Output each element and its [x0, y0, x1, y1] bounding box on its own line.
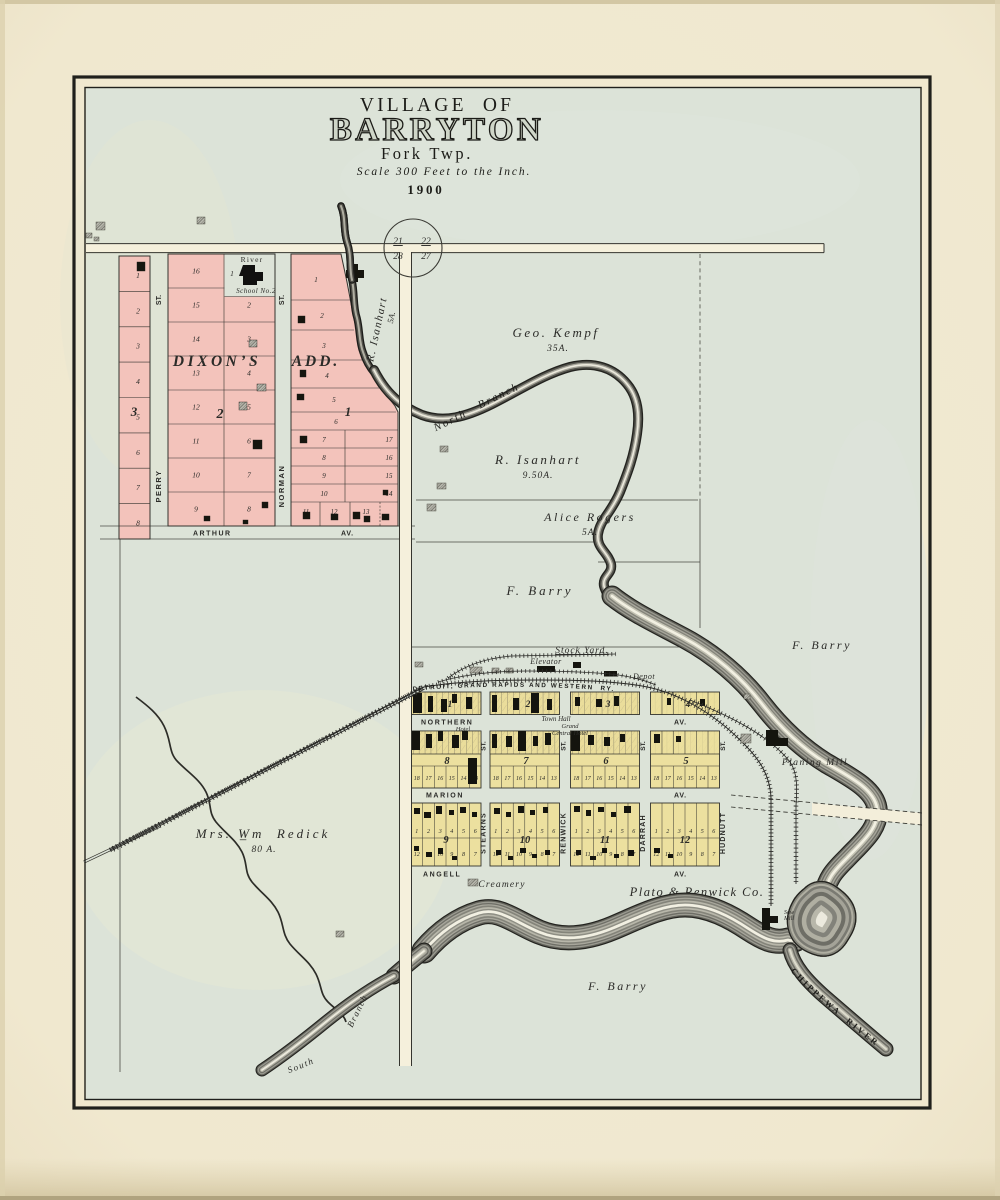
- svg-text:Hotel: Hotel: [455, 726, 471, 733]
- svg-text:RENWICK: RENWICK: [560, 812, 567, 854]
- svg-text:7: 7: [136, 483, 140, 492]
- svg-text:13: 13: [711, 776, 717, 782]
- svg-text:5: 5: [621, 829, 624, 835]
- svg-text:6: 6: [552, 829, 555, 835]
- svg-text:Central Hotel: Central Hotel: [552, 730, 588, 737]
- svg-text:8: 8: [701, 852, 704, 858]
- svg-text:Mill: Mill: [783, 916, 794, 922]
- svg-text:5: 5: [247, 403, 251, 412]
- svg-text:14: 14: [461, 775, 467, 782]
- svg-text:MARION: MARION: [426, 793, 464, 800]
- svg-text:9: 9: [689, 852, 692, 858]
- svg-text:10: 10: [596, 852, 602, 858]
- svg-text:10: 10: [676, 852, 682, 858]
- svg-text:1: 1: [314, 276, 318, 284]
- svg-text:14: 14: [192, 335, 200, 344]
- svg-text:13: 13: [192, 369, 200, 378]
- svg-text:18: 18: [493, 776, 499, 782]
- svg-text:ST.: ST.: [156, 295, 163, 305]
- svg-text:2: 2: [216, 407, 224, 422]
- svg-text:15: 15: [386, 472, 394, 480]
- svg-text:River: River: [241, 255, 264, 264]
- svg-text:NORMAN: NORMAN: [277, 465, 286, 508]
- svg-text:2: 2: [506, 829, 509, 835]
- svg-text:ST.: ST.: [279, 295, 286, 305]
- svg-text:2: 2: [320, 312, 324, 320]
- svg-text:ARTHUR: ARTHUR: [193, 531, 232, 538]
- svg-text:ST.: ST.: [481, 741, 488, 751]
- svg-text:F. Barry: F. Barry: [587, 979, 648, 993]
- svg-text:1: 1: [448, 700, 453, 710]
- svg-text:1900: 1900: [407, 182, 444, 197]
- svg-text:10: 10: [321, 490, 329, 498]
- svg-text:17: 17: [386, 436, 394, 444]
- svg-text:4: 4: [325, 372, 329, 380]
- svg-text:14: 14: [619, 775, 625, 782]
- svg-text:4: 4: [609, 828, 612, 835]
- svg-text:STEARNS: STEARNS: [481, 812, 488, 854]
- svg-text:12: 12: [414, 852, 420, 858]
- svg-text:1: 1: [415, 829, 418, 835]
- svg-text:9: 9: [529, 852, 532, 858]
- svg-text:HUDNUTT: HUDNUTT: [720, 812, 727, 854]
- svg-text:17: 17: [585, 776, 592, 782]
- svg-text:6: 6: [136, 448, 140, 457]
- svg-text:14: 14: [539, 775, 545, 782]
- svg-text:16: 16: [596, 776, 602, 782]
- svg-text:9: 9: [609, 852, 612, 858]
- svg-text:2: 2: [247, 301, 251, 310]
- svg-text:9: 9: [443, 835, 449, 846]
- svg-text:14: 14: [699, 775, 705, 782]
- svg-text:Geo. Kempf: Geo. Kempf: [512, 325, 599, 340]
- svg-text:13: 13: [631, 776, 637, 782]
- svg-text:3: 3: [438, 829, 442, 835]
- svg-text:F. Barry: F. Barry: [505, 583, 573, 598]
- svg-text:1: 1: [575, 829, 578, 835]
- svg-text:35A.: 35A.: [546, 344, 569, 354]
- svg-text:Planing Mill: Planing Mill: [781, 758, 848, 768]
- svg-text:1: 1: [655, 829, 658, 835]
- svg-text:2: 2: [136, 306, 140, 315]
- svg-text:8: 8: [247, 505, 251, 514]
- svg-text:8: 8: [541, 852, 544, 858]
- svg-text:7: 7: [523, 756, 529, 767]
- svg-text:7: 7: [247, 471, 251, 480]
- svg-text:6: 6: [334, 418, 338, 426]
- svg-text:18: 18: [653, 776, 659, 782]
- svg-text:8: 8: [462, 852, 465, 858]
- svg-text:5: 5: [462, 829, 465, 835]
- svg-text:18: 18: [414, 776, 420, 782]
- svg-text:13: 13: [363, 508, 371, 516]
- svg-text:DIXON’S: DIXON’S: [172, 353, 261, 370]
- svg-text:ADD.: ADD.: [291, 353, 341, 370]
- svg-text:3: 3: [321, 342, 326, 350]
- svg-text:17: 17: [665, 776, 672, 782]
- svg-text:AV.: AV.: [341, 531, 354, 538]
- svg-text:Mrs. W̲m Redick: Mrs. W̲m Redick: [195, 826, 331, 841]
- svg-text:F. Barry: F. Barry: [791, 638, 852, 652]
- svg-text:27: 27: [421, 252, 432, 262]
- svg-text:16: 16: [437, 776, 443, 782]
- svg-text:12: 12: [192, 403, 200, 412]
- svg-text:8: 8: [444, 756, 450, 767]
- svg-text:Scale 300 Feet to the Inch.: Scale 300 Feet to the Inch.: [357, 166, 532, 178]
- svg-text:AV.: AV.: [674, 720, 687, 727]
- svg-text:2: 2: [666, 829, 669, 835]
- svg-text:2: 2: [427, 829, 430, 835]
- svg-text:Alice Rogers: Alice Rogers: [543, 510, 636, 524]
- svg-text:4: 4: [689, 828, 692, 835]
- svg-text:22: 22: [421, 237, 431, 247]
- svg-text:PERRY: PERRY: [154, 469, 163, 502]
- svg-text:7: 7: [322, 436, 326, 444]
- svg-text:5A.: 5A.: [582, 528, 598, 538]
- svg-text:ST.: ST.: [640, 741, 647, 751]
- svg-text:10: 10: [192, 471, 200, 480]
- svg-text:16: 16: [516, 776, 522, 782]
- svg-text:School No.2: School No.2: [236, 287, 276, 295]
- svg-text:ST.: ST.: [560, 741, 567, 751]
- svg-text:15: 15: [608, 776, 614, 782]
- svg-text:6: 6: [247, 437, 251, 446]
- svg-text:3: 3: [605, 700, 611, 710]
- svg-text:80 A.: 80 A.: [251, 845, 276, 855]
- svg-text:5: 5: [332, 396, 336, 404]
- svg-text:18: 18: [573, 776, 579, 782]
- svg-text:21: 21: [393, 237, 403, 247]
- svg-text:1: 1: [494, 829, 497, 835]
- svg-text:4: 4: [136, 377, 140, 386]
- svg-text:Grand: Grand: [562, 723, 580, 730]
- svg-text:15: 15: [688, 776, 694, 782]
- svg-text:Fork Twp.: Fork Twp.: [381, 144, 473, 163]
- svg-text:9: 9: [194, 505, 198, 514]
- svg-text:17: 17: [426, 776, 433, 782]
- svg-text:16: 16: [386, 454, 394, 462]
- svg-text:BARRYTON: BARRYTON: [330, 112, 544, 148]
- svg-text:9: 9: [322, 472, 326, 480]
- svg-text:1: 1: [345, 404, 352, 419]
- svg-text:Depot: Depot: [632, 672, 655, 681]
- svg-text:15: 15: [192, 301, 200, 310]
- svg-text:15: 15: [528, 776, 534, 782]
- svg-text:ANGELL: ANGELL: [423, 872, 461, 879]
- svg-text:2: 2: [525, 700, 531, 710]
- svg-text:ST.: ST.: [720, 741, 727, 751]
- svg-text:Elevator: Elevator: [529, 657, 562, 666]
- svg-text:2: 2: [586, 829, 589, 835]
- svg-text:AV.: AV.: [674, 872, 687, 879]
- svg-text:9.50A.: 9.50A.: [523, 471, 554, 481]
- svg-text:DARRAH: DARRAH: [640, 814, 647, 852]
- svg-text:6: 6: [603, 756, 609, 767]
- svg-text:3: 3: [130, 404, 138, 419]
- svg-text:4: 4: [450, 828, 453, 835]
- svg-text:13: 13: [551, 776, 557, 782]
- svg-text:1: 1: [136, 271, 140, 280]
- svg-text:28: 28: [393, 252, 403, 262]
- svg-text:11: 11: [585, 852, 591, 858]
- svg-text:4: 4: [529, 828, 532, 835]
- svg-text:15: 15: [449, 776, 455, 782]
- svg-text:16: 16: [676, 776, 682, 782]
- svg-text:10: 10: [520, 835, 531, 846]
- svg-text:17: 17: [504, 776, 511, 782]
- svg-text:Creamery: Creamery: [478, 880, 525, 890]
- svg-text:4: 4: [247, 369, 251, 378]
- svg-text:3: 3: [135, 342, 140, 351]
- svg-text:6: 6: [474, 829, 477, 835]
- svg-text:8: 8: [322, 454, 326, 462]
- svg-text:11: 11: [600, 835, 610, 846]
- svg-text:5: 5: [541, 829, 544, 835]
- svg-text:5: 5: [683, 756, 688, 767]
- svg-text:Town Hall: Town Hall: [541, 715, 570, 723]
- svg-text:16: 16: [192, 267, 200, 276]
- svg-text:12: 12: [680, 835, 691, 846]
- svg-text:11: 11: [193, 437, 200, 446]
- svg-text:6: 6: [632, 829, 635, 835]
- svg-text:8: 8: [621, 852, 624, 858]
- svg-text:5: 5: [701, 829, 704, 835]
- svg-text:6: 6: [712, 829, 715, 835]
- svg-text:R. Isanhart: R. Isanhart: [494, 452, 581, 467]
- svg-text:1: 1: [230, 269, 234, 278]
- svg-text:AV.: AV.: [674, 793, 687, 800]
